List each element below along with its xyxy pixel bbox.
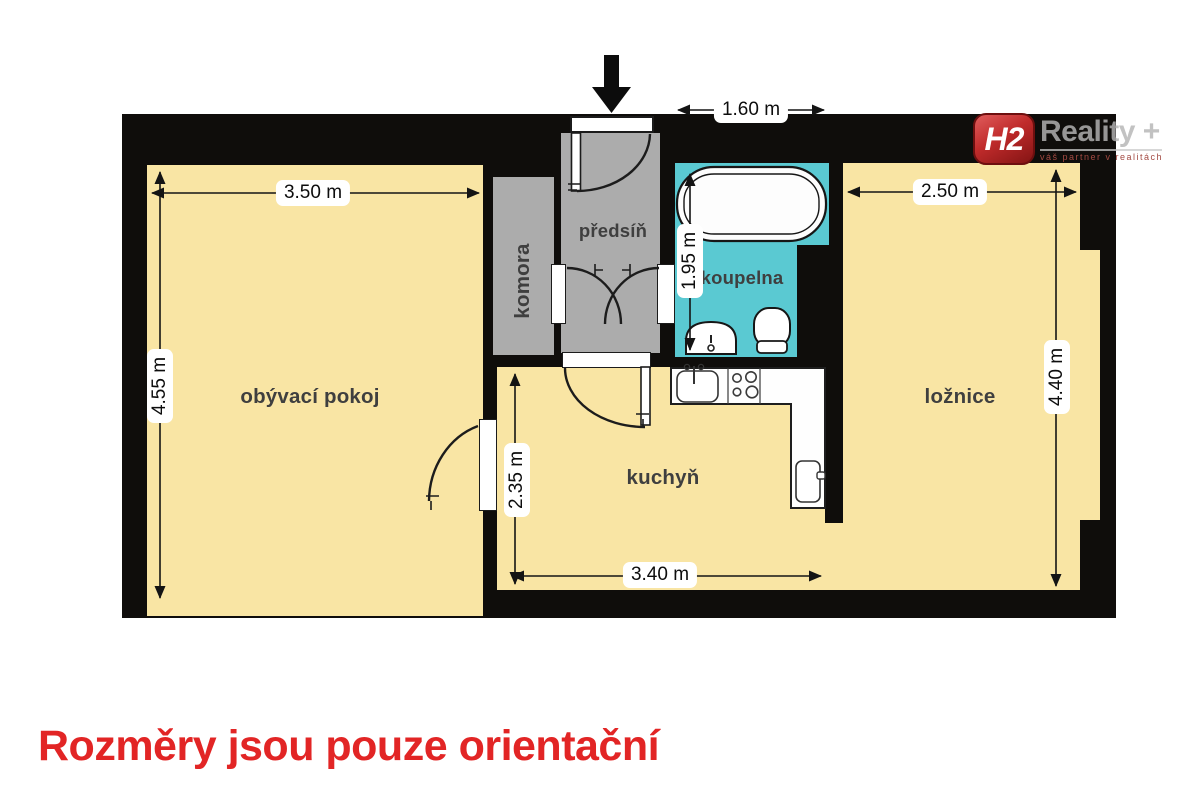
living-room-door-opening xyxy=(479,419,497,511)
pantry-door-opening xyxy=(551,264,566,324)
logo-divider xyxy=(1040,149,1162,151)
bathroom-door-opening xyxy=(657,264,675,324)
kitchen-label: kuchyň xyxy=(627,466,700,490)
dim-kitchen-width: 3.40 m xyxy=(623,562,697,588)
floor-bedroom-niche xyxy=(1080,250,1100,520)
dim-kitchen-height: 2.35 m xyxy=(504,443,530,517)
floor-plan-page: { "logo": { "monogram": "H2", "brand": "… xyxy=(0,0,1200,799)
entrance-arrow-icon xyxy=(592,55,631,113)
dim-bedroom-width: 2.50 m xyxy=(913,179,987,205)
dim-bath-height: 1.95 m xyxy=(677,224,703,298)
dim-living-height: 4.55 m xyxy=(147,349,173,423)
logo-monogram-badge: H2 xyxy=(973,113,1035,165)
logo-tagline: váš partner v realitách xyxy=(1040,152,1163,162)
hallway-label: předsíň xyxy=(579,220,647,242)
dim-living-width: 3.50 m xyxy=(276,180,350,206)
living-room-label: obývací pokoj xyxy=(240,385,379,409)
bedroom-label: ložnice xyxy=(925,385,996,409)
agency-logo: H2 Reality + váš partner v realitách xyxy=(973,112,1173,168)
floor-hallway xyxy=(561,133,660,353)
entrance-door-opening xyxy=(570,116,654,133)
logo-brand-text: Reality + xyxy=(1040,115,1160,149)
dim-bedroom-height: 4.40 m xyxy=(1044,340,1070,414)
dim-entry-width: 1.60 m xyxy=(714,97,788,123)
bathroom-label: koupelna xyxy=(701,267,784,289)
disclaimer-text: Rozměry jsou pouze orientační xyxy=(38,722,659,771)
pantry-label: komora xyxy=(511,243,535,318)
kitchen-door-opening xyxy=(562,352,651,368)
